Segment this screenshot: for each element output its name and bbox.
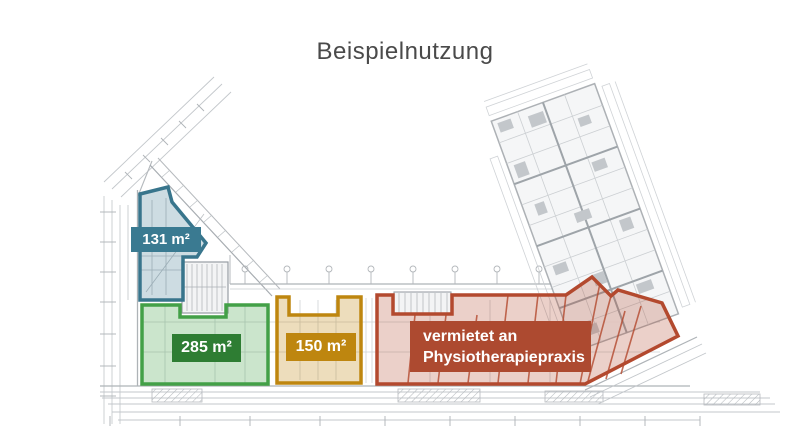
dimension-lines-top-left: [104, 77, 231, 197]
dimension-lines-left: [100, 196, 128, 424]
stairwell-right: [394, 292, 451, 314]
zone-red-status-badge: vermietet an Physiotherapiepraxis: [410, 321, 591, 372]
zone-blue-area-badge: 131 m²: [131, 227, 201, 252]
slide: Beispielnutzung: [0, 0, 810, 430]
zone-orange-area-badge: 150 m²: [286, 333, 356, 361]
zone-green-area-badge: 285 m²: [172, 334, 241, 362]
page-title: Beispielnutzung: [0, 38, 810, 66]
zone-red-status-line1: vermietet an: [423, 326, 591, 347]
stairwell-left: [182, 262, 228, 313]
zone-red-status-line2: Physiotherapiepraxis: [423, 347, 591, 368]
